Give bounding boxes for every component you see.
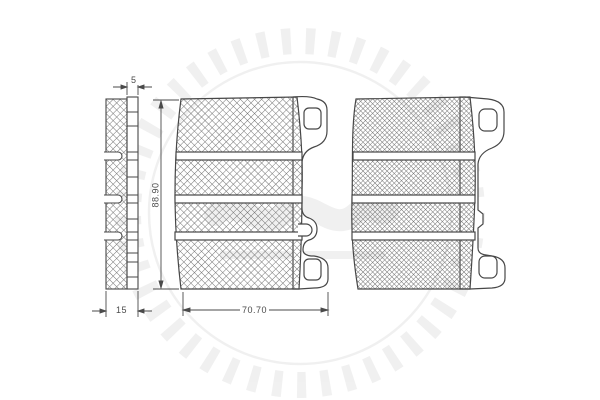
front-pad-bottom-hole (304, 259, 321, 280)
front-pad-groove (175, 232, 302, 240)
front-pad-friction-material (175, 97, 302, 289)
backplate-thickness-dimension-label: 5 (129, 75, 139, 85)
dim-width-arrow-left (183, 308, 190, 312)
pad-width-dimension-label: 70.70 (240, 305, 269, 315)
front-pad-top-hole (304, 108, 321, 129)
dim-15-arrow-left (138, 309, 144, 313)
side-view-groove (104, 195, 122, 203)
dim-5-arrow-right (121, 85, 127, 89)
front-pad-groove (176, 152, 302, 160)
pad-thickness-dimension-label: 15 (114, 305, 129, 315)
back-pad-top-hole (479, 109, 497, 131)
back-pad-bottom-hole (479, 256, 497, 278)
front-pad-groove (175, 195, 302, 203)
side-view-groove (104, 152, 122, 160)
back-pad-friction-material (352, 97, 476, 289)
pad-height-dimension-label: 88.90 (151, 180, 161, 209)
dim-15-arrow-right (100, 309, 106, 313)
back-pad-groove (353, 152, 475, 160)
back-pad-groove (352, 232, 475, 240)
dim-width-arrow-right (321, 308, 328, 312)
pad-back-view (352, 97, 505, 289)
brake-pad-technical-drawing: 5 15 88.90 70.70 (0, 0, 600, 400)
back-pad-groove (352, 195, 475, 203)
front-pad-wear-slot (298, 224, 312, 236)
dim-height-arrow-top (159, 101, 163, 108)
side-view-friction-material (106, 99, 127, 289)
side-view-groove (104, 232, 122, 240)
drawing-canvas (0, 0, 600, 400)
pad-front-view (175, 97, 328, 289)
dim-height-arrow-bottom (159, 281, 163, 288)
pad-side-view (104, 97, 138, 289)
dim-5-arrow-left (138, 85, 144, 89)
